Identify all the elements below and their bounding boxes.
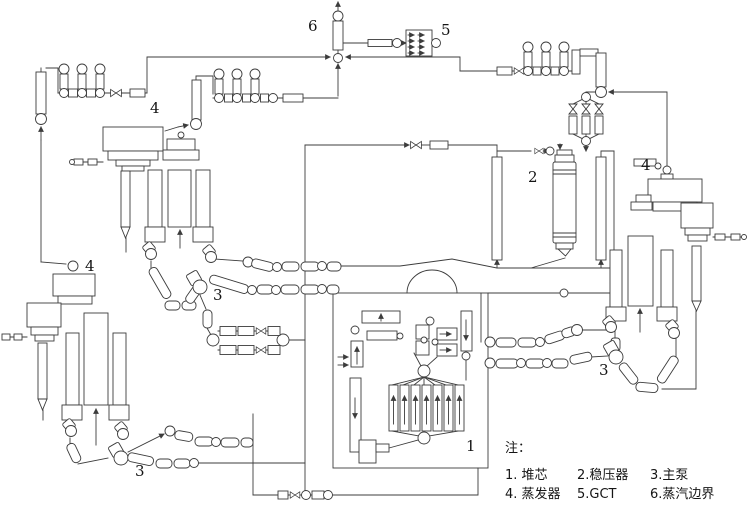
relief-valve-icon (214, 69, 260, 94)
valve-icon (256, 347, 266, 353)
legend-item-gct: 5.GCT (577, 487, 617, 502)
valve-icon (290, 492, 300, 498)
valve-icon (514, 68, 524, 74)
surge-column-left (492, 157, 502, 260)
legend-item-steam-boundary: 6.蒸汽边界 (650, 487, 714, 502)
surge-column-right (596, 157, 606, 260)
label-sg-top-left: 4 (150, 99, 160, 117)
sg-outlet-pump-icon (66, 426, 77, 437)
process-diagram: 1 2 3 3 3 4 4 4 5 6 注： 1. 堆芯 2.稳压器 3.主泵 … (0, 0, 749, 506)
sg-outlet-pump-icon (206, 252, 217, 263)
valve-icon (111, 89, 122, 96)
legend-item-sg: 4. 蒸发器 (505, 486, 561, 502)
sg-outlet-pump-icon (669, 328, 680, 339)
label-gct: 5 (441, 21, 451, 39)
valve-icon (256, 328, 266, 334)
label-sg-bottom-left: 4 (85, 257, 95, 275)
main-pump-icon (609, 350, 623, 364)
spray-head-icon (546, 147, 554, 155)
steam-boundary (333, 2, 343, 63)
label-core: 1 (466, 437, 476, 455)
junction-node (334, 54, 343, 63)
safety-valve-cluster-right (497, 42, 607, 98)
loop-piping-left (148, 257, 341, 310)
label-steam-boundary: 6 (308, 17, 318, 35)
safety-valve-cluster-left (36, 64, 148, 125)
relief-valve-icon (59, 64, 105, 89)
loop-piping-bottom-left (66, 426, 253, 468)
loop-piping-right (485, 325, 680, 393)
steam-generator-top-left (70, 127, 217, 263)
bottom-drain-line (278, 491, 333, 500)
valve-icon (411, 141, 422, 148)
main-pump-icon (193, 280, 207, 294)
steam-generator-bottom-left (2, 261, 129, 440)
relief-valve-icon (523, 42, 569, 67)
sg-outlet-pump-icon (146, 249, 157, 260)
pressurizer (492, 93, 606, 261)
sg-outlet-pump-icon (606, 322, 617, 333)
label-pump-right: 3 (599, 361, 609, 379)
spray-valve-icon (535, 148, 543, 154)
safety-valve-cluster-mid (191, 69, 304, 130)
legend-title: 注： (505, 441, 531, 456)
label-sg-right: 4 (641, 156, 651, 174)
core-channels (389, 377, 464, 436)
label-pump-bottom-left: 3 (135, 462, 145, 480)
reactor-core-box (333, 270, 568, 468)
reactor-dome (407, 270, 457, 293)
legend: 注： 1. 堆芯 2.稳压器 3.主泵 4. 蒸发器 5.GCT 6.蒸汽边界 (505, 441, 714, 502)
sg-outlet-pump-icon (118, 429, 129, 440)
legend-item-core: 1. 堆芯 (505, 468, 548, 483)
diagram-canvas: 1 2 3 3 3 4 4 4 5 6 注： 1. 堆芯 2.稳压器 3.主泵 … (0, 0, 749, 506)
bypass-loop (203, 310, 289, 355)
label-pump-left: 3 (213, 286, 223, 304)
main-pump-icon (114, 451, 128, 465)
steam-generator-right (602, 159, 747, 339)
pressurizer-relief-valves (569, 93, 603, 152)
legend-item-pressurizer: 2.稳压器 (577, 467, 628, 483)
legend-item-pump: 3.主泵 (650, 468, 688, 483)
label-pressurizer: 2 (528, 168, 538, 186)
